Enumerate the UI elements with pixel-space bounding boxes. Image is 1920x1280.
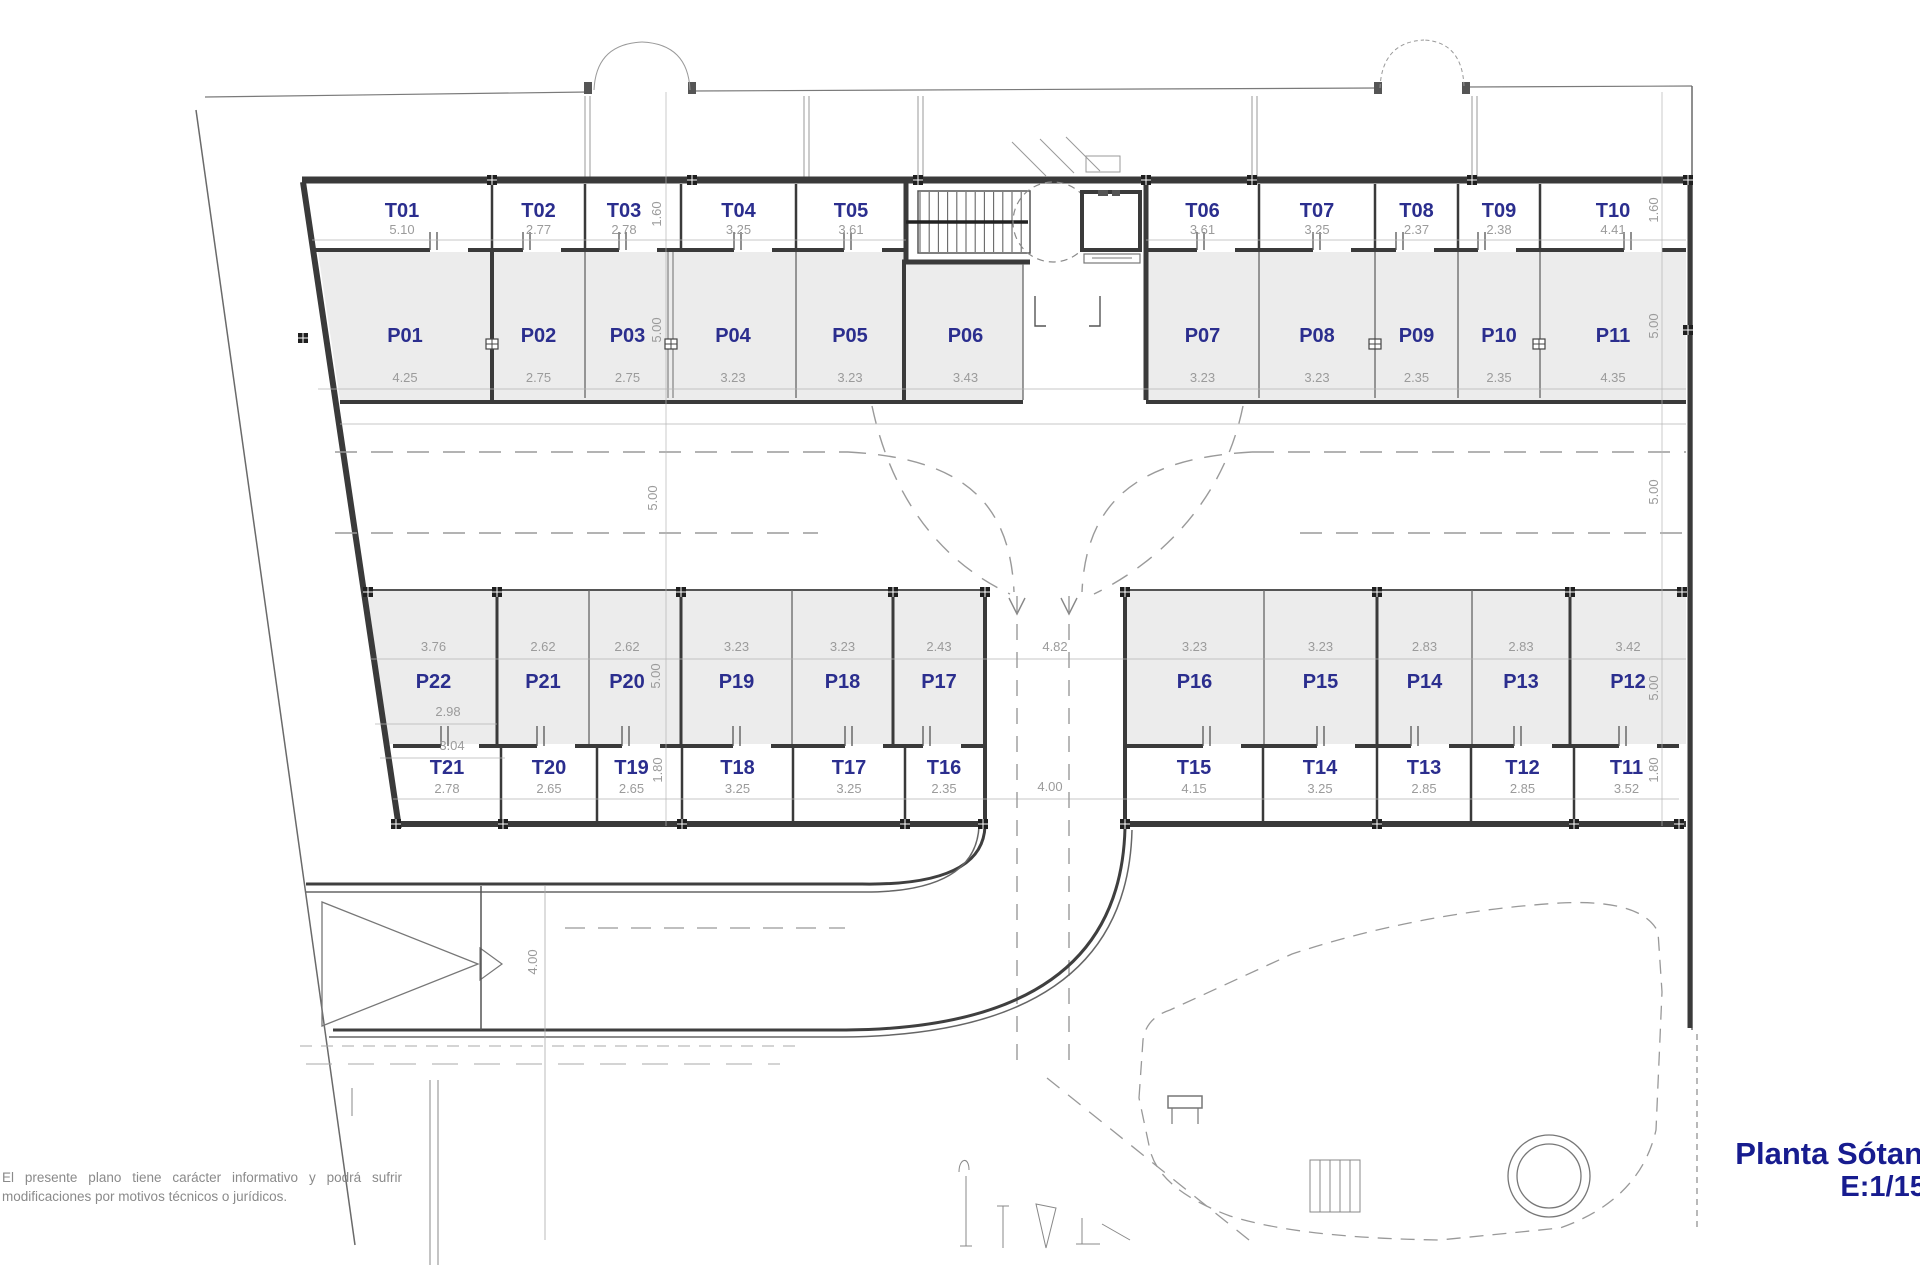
depth-dim: 5.00 [1646, 479, 1661, 504]
gate-arc [1380, 40, 1424, 88]
room-dim: 2.43 [926, 639, 951, 654]
room-label: T01 [385, 200, 419, 222]
bench-symbol [1168, 1096, 1202, 1108]
room-label: T09 [1482, 200, 1516, 222]
fence-line [1466, 86, 1692, 87]
room-dim: 2.75 [526, 370, 551, 385]
room-dim: 4.15 [1181, 781, 1206, 796]
round-planter [1517, 1144, 1581, 1208]
room-label: P03 [610, 325, 646, 347]
depth-dim: 1.80 [1646, 757, 1661, 782]
room-label: T02 [521, 200, 555, 222]
room-dim: 3.52 [1614, 781, 1639, 796]
room-dim: 3.04 [439, 738, 464, 753]
room-label: T08 [1399, 200, 1433, 222]
room-label: T12 [1505, 757, 1539, 779]
room-label: T13 [1407, 757, 1441, 779]
room-dim: 3.25 [1307, 781, 1332, 796]
room-label: T14 [1303, 757, 1338, 779]
room-label: T20 [532, 757, 566, 779]
round-planter [1508, 1135, 1590, 1217]
room-label: P08 [1299, 325, 1335, 347]
room-label: P09 [1399, 325, 1435, 347]
room-dim: 2.77 [526, 222, 551, 237]
door-swing [1089, 296, 1100, 326]
door-swing [1035, 296, 1046, 326]
room-label: P17 [921, 671, 957, 693]
room-dim: 2.78 [611, 222, 636, 237]
room-dim: 2.83 [1412, 639, 1437, 654]
room-dim: 4.25 [392, 370, 417, 385]
title-block: Planta Sótano E:1/150 [1735, 1136, 1920, 1203]
room-label: P20 [609, 671, 645, 693]
room-label: T07 [1300, 200, 1334, 222]
room-label: T18 [720, 757, 754, 779]
room-dim: 3.25 [726, 222, 751, 237]
elevator-shaft [1082, 192, 1140, 250]
room-label: P16 [1177, 671, 1213, 693]
room-dim: 3.61 [838, 222, 863, 237]
room-dim: 2.35 [931, 781, 956, 796]
disclaimer-note: El presente plano tiene carácter informa… [2, 1168, 402, 1206]
room-label: T06 [1185, 200, 1219, 222]
garden-symbol [1076, 1218, 1130, 1244]
room-dim: 3.43 [953, 370, 978, 385]
room-label: P19 [719, 671, 755, 693]
room-label: P22 [416, 671, 452, 693]
disclaimer-line: El presente plano tiene carácter informa… [2, 1168, 402, 1187]
room-label: P21 [525, 671, 561, 693]
corridor-wall [333, 828, 1125, 1030]
room-label: T05 [834, 200, 868, 222]
room-dim: 2.35 [1486, 370, 1511, 385]
plan-rect [1086, 156, 1120, 172]
ramp-dim: 4.00 [525, 949, 540, 974]
room-label: T04 [721, 200, 756, 222]
room-label: P14 [1407, 671, 1443, 693]
room-dim: 2.75 [615, 370, 640, 385]
corridor-wall [306, 826, 985, 884]
room-dim: 3.23 [1308, 639, 1333, 654]
room-dim: 5.10 [389, 222, 414, 237]
room-label: T16 [927, 757, 961, 779]
room-dim: 3.23 [1304, 370, 1329, 385]
room-label: P12 [1610, 671, 1646, 693]
corridor-wall [306, 826, 979, 892]
room-label: T21 [430, 757, 464, 779]
lane-curve [1094, 406, 1243, 594]
lane-curve [872, 406, 1010, 594]
elevator-door-mark [1098, 190, 1108, 196]
parking-row-fill [318, 252, 1023, 400]
room-dim: 3.23 [720, 370, 745, 385]
room-label: P05 [832, 325, 868, 347]
depth-dim: 1.80 [650, 757, 665, 782]
room-dim: 3.25 [836, 781, 861, 796]
fence-post [1374, 82, 1382, 94]
gate-arc [1424, 40, 1464, 86]
plan-scale: E:1/150 [1735, 1171, 1920, 1203]
room-dim: 3.25 [1304, 222, 1329, 237]
fence-post [1462, 82, 1470, 94]
room-label: P15 [1303, 671, 1339, 693]
room-dim: 2.85 [1510, 781, 1535, 796]
room-label: P11 [1596, 325, 1630, 347]
site-plan-drawing: 1.605.005.005.001.801.605.005.005.001.80… [0, 0, 1920, 1280]
plan-path [1047, 1078, 1254, 1244]
room-dim: 3.23 [837, 370, 862, 385]
room-label: P07 [1185, 325, 1221, 347]
fence-line [205, 92, 588, 97]
room-dim: 4.41 [1600, 222, 1625, 237]
depth-dim: 5.00 [648, 663, 663, 688]
room-label: T03 [607, 200, 641, 222]
room-dim: 2.85 [1411, 781, 1436, 796]
depth-dim: 1.60 [1646, 197, 1661, 222]
room-dim: 2.38 [1486, 222, 1511, 237]
ramp-arrow [480, 948, 502, 980]
room-dim: 3.76 [421, 639, 446, 654]
disclaimer-line: modifica­ciones por motivos técnicos o j… [2, 1187, 402, 1206]
depth-dim: 5.00 [649, 317, 664, 342]
room-dim: 4.35 [1600, 370, 1625, 385]
parking-row-fill [1125, 590, 1686, 744]
room-dim: 2.62 [614, 639, 639, 654]
room-dim: 2.98 [435, 704, 460, 719]
room-label: P02 [521, 325, 557, 347]
room-dim: 3.23 [1182, 639, 1207, 654]
garden-symbol [1036, 1204, 1056, 1248]
ramp-dim: 4.00 [1037, 779, 1062, 794]
ramp-dim: 4.82 [1042, 639, 1067, 654]
room-label: P06 [948, 325, 984, 347]
room-dim: 3.42 [1615, 639, 1640, 654]
floor-plan-canvas: 1.605.005.005.001.801.605.005.005.001.80… [0, 0, 1920, 1280]
depth-dim: 5.00 [645, 485, 660, 510]
room-label: P13 [1503, 671, 1539, 693]
room-label: T15 [1177, 757, 1211, 779]
room-label: T19 [614, 757, 648, 779]
gate-arc [642, 42, 690, 90]
room-label: P01 [387, 325, 423, 347]
garden-symbol [997, 1206, 1009, 1248]
lane-curve [848, 452, 1014, 592]
fence-post [584, 82, 592, 94]
room-dim: 2.78 [434, 781, 459, 796]
room-dim: 2.62 [530, 639, 555, 654]
room-label: P10 [1481, 325, 1517, 347]
steps-symbol [1310, 1160, 1360, 1212]
depth-dim: 5.00 [1646, 313, 1661, 338]
room-dim: 2.37 [1404, 222, 1429, 237]
room-label: T10 [1596, 200, 1630, 222]
room-dim: 3.23 [724, 639, 749, 654]
room-dim: 3.61 [1190, 222, 1215, 237]
room-dim: 3.23 [1190, 370, 1215, 385]
ramp-slope-symbol [322, 902, 478, 1026]
room-label: P04 [715, 325, 751, 347]
corridor-wall [329, 830, 1132, 1037]
room-dim: 2.65 [619, 781, 644, 796]
room-label: P18 [825, 671, 861, 693]
lane-curve [1082, 452, 1252, 592]
room-dim: 2.65 [536, 781, 561, 796]
terrace-outline [1139, 903, 1662, 1240]
room-dim: 3.23 [830, 639, 855, 654]
depth-dim: 1.60 [649, 201, 664, 226]
fence-line [692, 88, 1378, 91]
garden-symbol [959, 1160, 972, 1246]
plan-title: Planta Sótano [1735, 1136, 1920, 1171]
elevator-door-mark [1112, 190, 1120, 196]
gate-arc [594, 42, 642, 90]
room-label: T11 [1610, 757, 1643, 779]
room-dim: 2.35 [1404, 370, 1429, 385]
room-dim: 2.83 [1508, 639, 1533, 654]
depth-dim: 5.00 [1646, 675, 1661, 700]
room-label: T17 [832, 757, 866, 779]
room-dim: 3.25 [725, 781, 750, 796]
